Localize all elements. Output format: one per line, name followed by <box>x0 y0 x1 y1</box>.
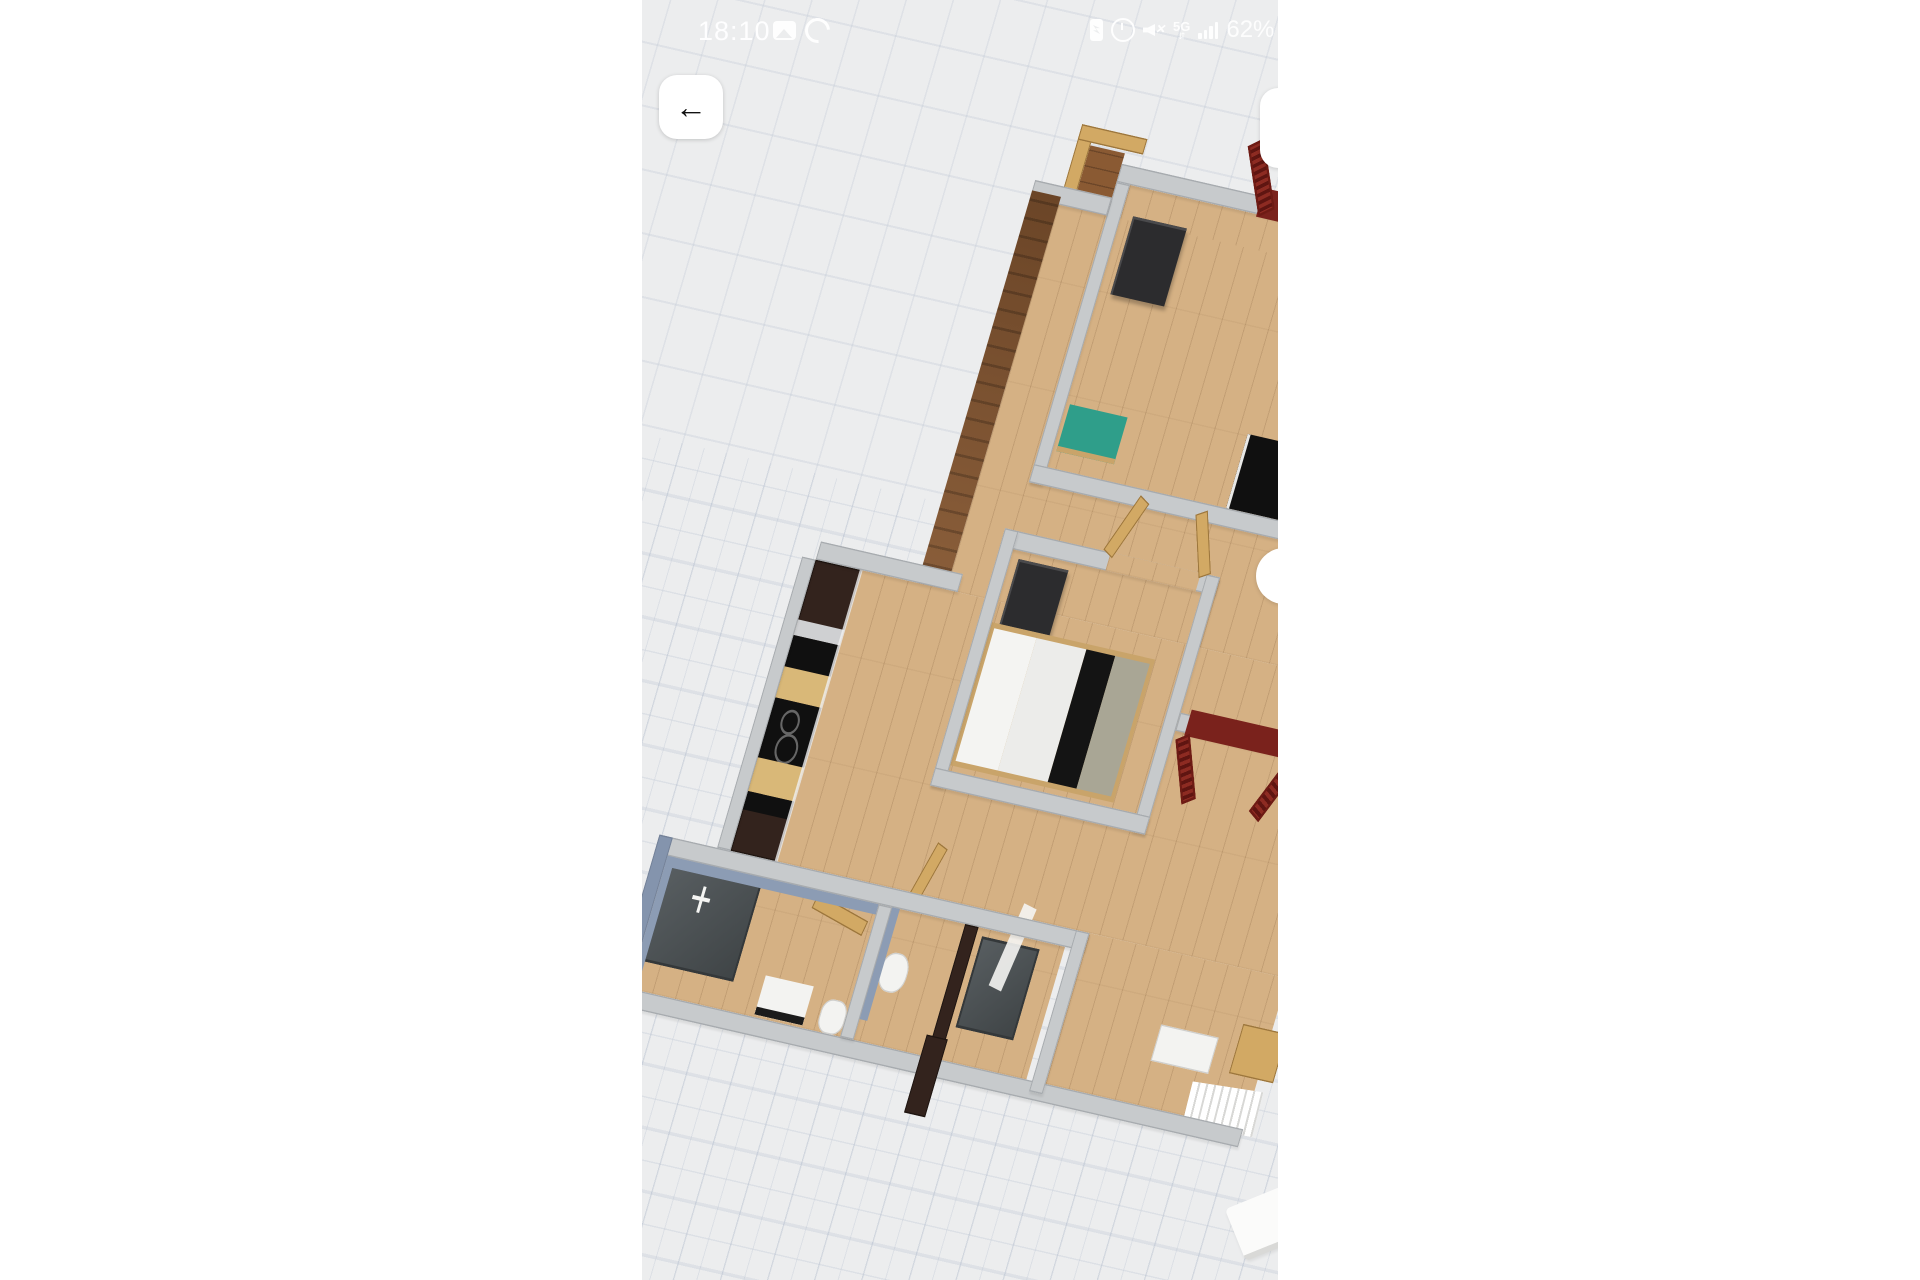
5g-icon: 5G⇵ <box>1173 20 1190 41</box>
back-arrow-icon: ← <box>675 89 707 126</box>
page: 18:10 ✕ 5G⇵ 62% ← <box>0 0 1920 1280</box>
back-button[interactable]: ← <box>659 75 723 139</box>
status-right-cluster: ✕ 5G⇵ 62% <box>1090 16 1278 44</box>
signal-bars-icon <box>1198 21 1218 39</box>
battery-percent: 62% <box>1226 16 1274 44</box>
mute-icon: ✕ <box>1143 20 1165 40</box>
app-screenshot: 18:10 ✕ 5G⇵ 62% ← <box>642 0 1278 1280</box>
gallery-icon <box>773 21 796 40</box>
status-time: 18:10 <box>698 16 771 47</box>
edge-button-partial[interactable] <box>1260 88 1278 168</box>
alarm-clock-icon <box>1111 18 1135 42</box>
battery-saver-icon <box>1090 19 1103 41</box>
